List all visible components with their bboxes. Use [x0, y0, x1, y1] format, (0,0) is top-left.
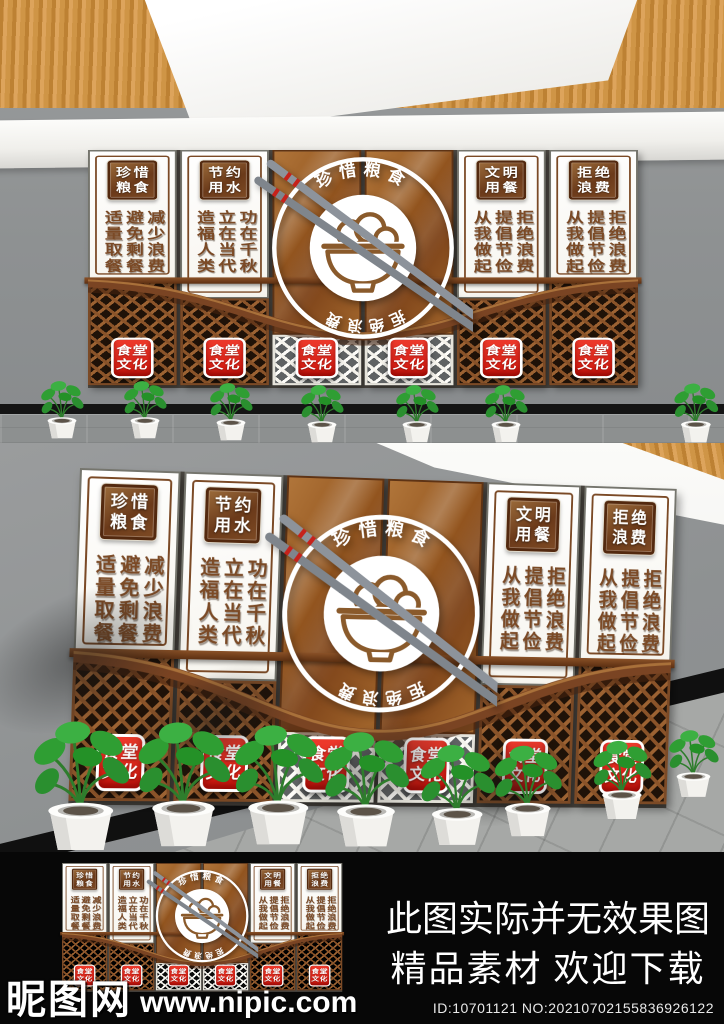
text-panel-cherish-food: 珍惜 粮食 适量取餐 避免剩餐 减少浪费	[88, 150, 177, 280]
potted-plant	[585, 723, 659, 821]
badge-text: 食堂	[264, 968, 281, 976]
plant-pot	[217, 419, 246, 440]
plant-pot	[308, 421, 337, 442]
slogan-column: 避免剩餐	[123, 210, 142, 274]
badge-text: 浪费	[575, 180, 613, 195]
plant-leaves	[491, 744, 565, 808]
badge-text: 食堂	[311, 968, 328, 976]
slogan-column: 立在当代	[218, 557, 242, 647]
render-closeup-view: 珍惜 粮食 适量取餐 避免剩餐 减少浪费 食堂 文化 节约 用水	[0, 443, 724, 852]
badge-text: 食堂	[123, 968, 140, 976]
badge-text: 粮食	[75, 879, 94, 887]
badge-text: 食堂	[485, 344, 518, 358]
slogan-column: 拒绝浪费	[606, 210, 625, 274]
panel-header-badge: 节约 用水	[200, 161, 250, 200]
plant-leaves	[122, 380, 169, 421]
badge-text: 食堂	[392, 344, 425, 358]
watermark-logo-text: 昵图网	[6, 980, 132, 1020]
design-thumbnail: 珍惜 粮食 适量取餐 避免剩餐 减少浪费 食堂 文化 节约 用水	[62, 863, 342, 992]
badge-text: 文化	[300, 358, 333, 372]
logo-arc-text-top: 珍惜粮食	[328, 515, 440, 555]
nipic-watermark: 昵图网 www.nipic.com	[6, 980, 357, 1020]
wall-column-6: 拒绝 浪费 从我做起 提倡节俭 拒绝浪费 食堂 文化	[549, 150, 638, 387]
badge-text: 用餐	[263, 879, 282, 887]
potted-plant	[668, 370, 724, 443]
badge-text: 节约	[206, 165, 244, 180]
badge-text: 珍惜	[107, 491, 151, 513]
vertical-slogan: 从我做起 提倡节俭 拒绝浪费	[298, 896, 341, 931]
asset-id-text: ID:10701121 NO:20210702155836926122	[433, 1000, 714, 1016]
badge-text: 文化	[485, 358, 518, 372]
badge-text: 食堂	[208, 344, 241, 358]
badge-text: 粮食	[113, 180, 151, 195]
text-panel-cherish-food: 珍惜 粮食 适量取餐 避免剩餐 减少浪费	[62, 863, 107, 933]
slogan-column: 从我做起	[563, 210, 582, 274]
plant-leaves	[591, 740, 655, 796]
canteen-culture-wall: 珍惜 粮食 适量取餐 避免剩餐 减少浪费 食堂 文化 节约 用水	[62, 863, 342, 992]
slogan-column: 减少浪费	[144, 210, 163, 274]
slogan-column: 从我做起	[594, 567, 616, 654]
culture-wall-instance: 珍惜 粮食 适量取餐 避免剩餐 减少浪费 食堂 文化 节约 用水	[88, 150, 638, 388]
slogan-column: 提倡节俭	[519, 565, 542, 653]
badge-text: 用水	[122, 879, 141, 887]
badge-text: 节约	[212, 494, 255, 516]
plant-pot	[403, 421, 432, 442]
slogan-column: 拒绝浪费	[279, 896, 288, 931]
plant-leaves	[299, 384, 346, 425]
plant-pot	[152, 801, 214, 847]
potted-plant	[485, 725, 571, 839]
plant-pot	[337, 804, 395, 846]
slogan-column: 从我做起	[257, 896, 266, 931]
tile-floor	[0, 414, 724, 443]
potted-plant	[20, 692, 142, 852]
slogan-column: 造福人类	[116, 896, 125, 931]
badge-text: 用水	[211, 515, 254, 537]
slogan-column: 从我做起	[471, 210, 490, 274]
footer-notice-line2: 精品素材 欢迎下载	[378, 940, 718, 992]
slogan-column: 提倡节俭	[616, 568, 638, 655]
potted-plant	[204, 370, 258, 442]
bowl-chopsticks-logo: 珍惜粮食 拒绝浪费	[253, 138, 473, 358]
plant-leaves	[672, 383, 720, 425]
potted-plant	[35, 368, 89, 440]
plant-leaves	[29, 719, 134, 810]
slogan-column: 避免剩餐	[80, 896, 89, 931]
plant-leaves	[320, 730, 413, 811]
footer-strip: 珍惜 粮食 适量取餐 避免剩餐 减少浪费 食堂 文化 节约 用水	[0, 852, 724, 1024]
slogan-column: 减少浪费	[91, 896, 100, 931]
slogan-column: 提倡节俭	[268, 896, 277, 931]
wall-column-1: 珍惜 粮食 适量取餐 避免剩餐 减少浪费 食堂 文化	[88, 150, 177, 387]
badge-text: 文明	[482, 165, 520, 180]
slogan-column: 造福人类	[194, 210, 213, 274]
badge-text: 拒绝	[310, 871, 329, 879]
text-panel-refuse-waste: 拒绝 浪费 从我做起 提倡节俭 拒绝浪费	[549, 150, 638, 280]
plant-leaves	[208, 382, 255, 423]
badge-text: 文明	[263, 871, 282, 879]
slogan-column: 拒绝浪费	[638, 569, 660, 656]
canteen-culture-wall: 珍惜 粮食 适量取餐 避免剩餐 减少浪费 食堂 文化 节约 用水	[88, 150, 638, 388]
potted-plant	[390, 372, 444, 443]
plant-pot	[492, 421, 521, 442]
badge-text: 浪费	[609, 527, 649, 548]
plant-leaves	[667, 729, 721, 776]
slogan-column: 立在当代	[215, 210, 234, 274]
panel-header-badge: 节约 用水	[119, 869, 144, 890]
slogan-column: 拒绝浪费	[326, 896, 335, 931]
footer-notice-line1: 此图实际并无效果图	[378, 890, 718, 942]
badge-text: 用水	[206, 180, 244, 195]
plant-pot	[432, 808, 482, 845]
slogan-column: 提倡节俭	[584, 210, 603, 274]
plant-leaves	[483, 384, 530, 425]
potted-plant	[662, 715, 724, 799]
plant-leaves	[394, 384, 441, 425]
panel-header-badge: 拒绝 浪费	[569, 161, 619, 200]
panel-header-badge: 文明 用餐	[260, 869, 285, 890]
badge-text: 节约	[122, 871, 141, 879]
badge-text: 文化	[577, 358, 610, 372]
vertical-slogan: 从我做起 提倡节俭 拒绝浪费	[551, 210, 636, 274]
panel-header-badge: 拒绝 浪费	[307, 869, 332, 890]
panel-header-badge: 珍惜 粮食	[72, 869, 97, 890]
slogan-column: 提倡节俭	[315, 896, 324, 931]
slogan-column: 从我做起	[304, 896, 313, 931]
plant-leaves	[39, 380, 86, 421]
logo-arc-text-top: 珍惜粮食	[176, 870, 229, 888]
slogan-column: 拒绝浪费	[541, 566, 564, 654]
potted-plant	[312, 706, 420, 850]
wall-column-6: 拒绝 浪费 从我做起 提倡节俭 拒绝浪费 食堂 文化	[297, 863, 342, 991]
slogan-column: 立在当代	[127, 896, 136, 931]
wall-column-1: 珍惜 粮食 适量取餐 避免剩餐 减少浪费 食堂 文化	[62, 863, 107, 991]
badge-text: 珍惜	[113, 165, 151, 180]
badge-text: 食堂	[577, 344, 610, 358]
plant-leaves	[134, 720, 235, 808]
panel-header-badge: 拒绝 浪费	[603, 501, 656, 555]
badge-text: 食堂	[76, 968, 93, 976]
badge-text: 拒绝	[610, 507, 650, 528]
panel-header-badge: 珍惜 粮食	[100, 484, 158, 541]
slogan-column: 拒绝浪费	[513, 210, 532, 274]
plant-pot	[681, 421, 711, 443]
text-panel-refuse-waste: 拒绝 浪费 从我做起 提倡节俭 拒绝浪费	[297, 863, 342, 933]
slogan-column: 适量取餐	[102, 210, 121, 274]
badge-text: 食堂	[116, 344, 149, 358]
vertical-slogan: 适量取餐 避免剩餐 减少浪费	[63, 896, 106, 931]
badge-text: 粮食	[107, 511, 151, 533]
render-top-view: 珍惜 粮食 适量取餐 避免剩餐 减少浪费 食堂 文化 节约 用水	[0, 0, 724, 443]
badge-text: 拒绝	[575, 165, 613, 180]
plant-pot	[48, 803, 113, 850]
badge-text: 文明	[513, 504, 554, 525]
plant-pot	[48, 417, 77, 438]
plant-pot	[677, 772, 711, 797]
panel-header-badge: 节约 用水	[204, 487, 261, 543]
badge-text: 珍惜	[75, 871, 94, 879]
stock-preview-image: 珍惜 粮食 适量取餐 避免剩餐 减少浪费 食堂 文化 节约 用水	[0, 0, 724, 1024]
slogan-column: 提倡节俭	[492, 210, 511, 274]
vertical-slogan: 从我做起 提倡节俭 拒绝浪费	[581, 567, 672, 656]
bowl-chopsticks-logo: 珍惜粮食 拒绝浪费	[146, 860, 258, 972]
badge-text: 食堂	[170, 968, 187, 976]
vertical-slogan: 适量取餐 避免剩餐 减少浪费	[90, 210, 175, 274]
plant-pot	[131, 417, 160, 438]
panel-header-badge: 文明 用餐	[477, 161, 527, 200]
panel-header-badge: 文明 用餐	[506, 497, 560, 552]
plant-pot	[248, 801, 308, 845]
watermark-url: www.nipic.com	[140, 986, 357, 1021]
badge-text: 食堂	[217, 968, 234, 976]
plant-pot	[602, 790, 641, 819]
badge-text: 用餐	[482, 180, 520, 195]
badge-text: 食堂	[300, 344, 333, 358]
badge-text: 浪费	[310, 879, 329, 887]
badge-text: 文化	[392, 358, 425, 372]
text-panel-refuse-waste: 拒绝 浪费 从我做起 提倡节俭 拒绝浪费	[579, 486, 677, 664]
logo-arc-text-top: 珍惜粮食	[312, 159, 414, 193]
slogan-column: 适量取餐	[69, 896, 78, 931]
plant-pot	[505, 803, 551, 836]
potted-plant	[479, 372, 533, 443]
panel-header-badge: 珍惜 粮食	[108, 161, 158, 200]
potted-plant	[118, 368, 172, 440]
canteen-culture-badge: 食堂 文化	[572, 338, 615, 379]
badge-text: 用餐	[512, 524, 553, 545]
potted-plant	[295, 372, 349, 443]
